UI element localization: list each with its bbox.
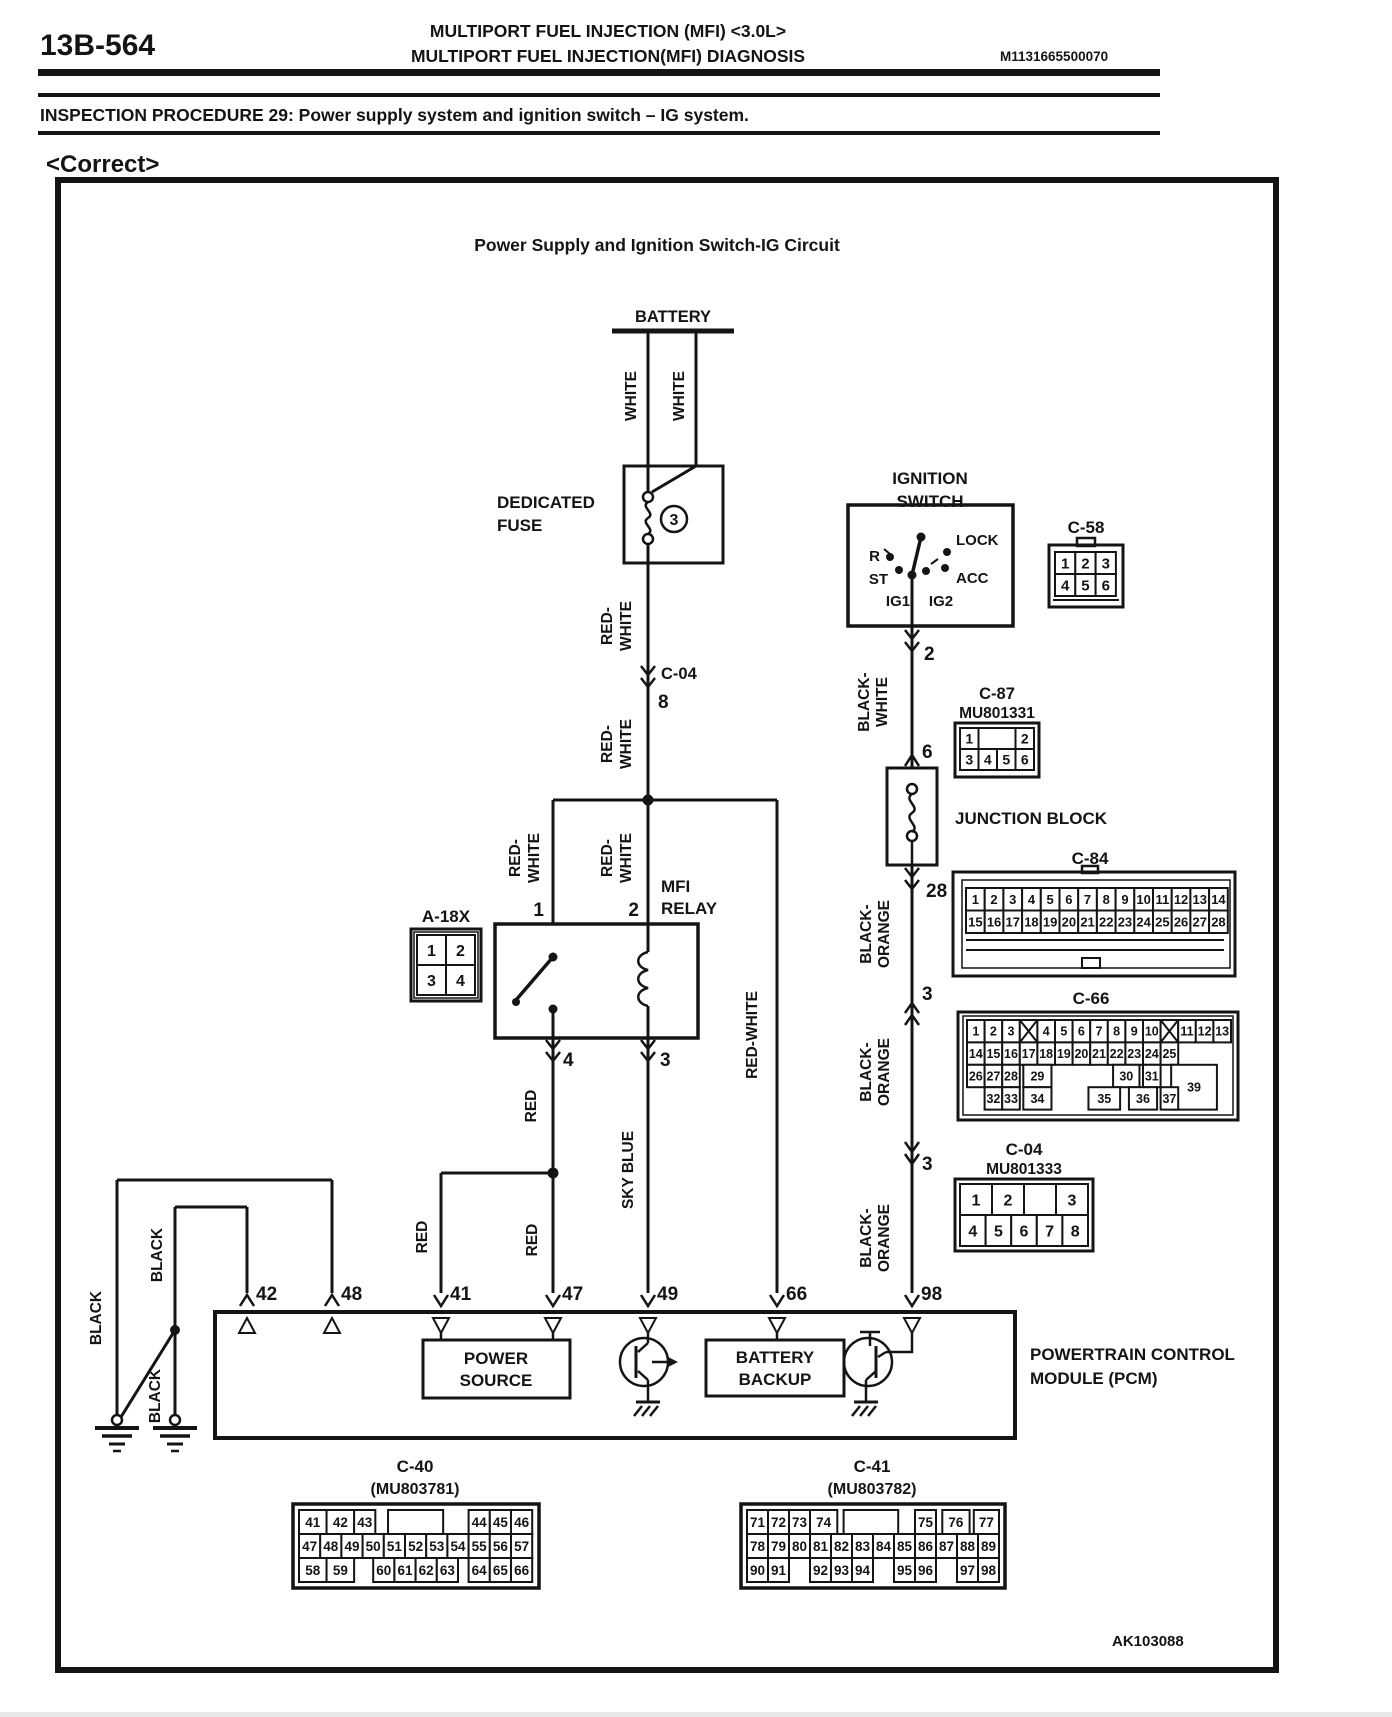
connector-pin-number: 53 [429, 1539, 445, 1554]
connector-c41: C-41 (MU803782) 717273747576777879808182… [741, 1457, 1005, 1588]
connector-c40: C-40 (MU803781) 414243444546474849505152… [293, 1457, 539, 1588]
connector-pin-number: 76 [948, 1515, 964, 1530]
connector-pin-number: 72 [771, 1515, 786, 1530]
wire-blackwhite-l1: BLACK- [856, 672, 873, 731]
jb-out-pin: 28 [926, 881, 947, 902]
connector-pin-number: 52 [408, 1539, 423, 1554]
power-source-line1: POWER [464, 1349, 528, 1368]
connector-pin-number: 58 [305, 1563, 321, 1578]
wire-redwhite4-l1: RED- [599, 839, 616, 877]
procedure-title: INSPECTION PROCEDURE 29: Power supply sy… [40, 105, 749, 125]
connector-pin-number: 57 [514, 1539, 529, 1554]
wire-redwhite4-l2: WHITE [618, 833, 635, 883]
connector-pin-number: 50 [366, 1539, 381, 1554]
connector-pin-number: 64 [472, 1563, 488, 1578]
connector-pin-number: 4 [1043, 1025, 1050, 1039]
connector-pin-number: 94 [855, 1563, 871, 1578]
connector-pin-number: 1 [965, 731, 973, 747]
connector-pin-number: 24 [1145, 1047, 1159, 1061]
connector-pin-number: 25 [1162, 1047, 1176, 1061]
wire-white-1: WHITE [623, 371, 640, 421]
connector-pin-number: 61 [397, 1563, 413, 1578]
connector-pin-number: 1 [427, 943, 436, 960]
connector-pin-number: 1 [1061, 555, 1069, 572]
c87-label: C-87 [979, 685, 1015, 703]
c66-grid: 1234567891011121314151617181920212223242… [967, 1020, 1231, 1110]
wire-redwhite-66: RED-WHITE [744, 991, 761, 1079]
c87-grid: 123456 [960, 728, 1034, 770]
connector-pin-number: 87 [939, 1539, 954, 1554]
connector-cell [844, 1510, 899, 1534]
wire-blackorange3-l1: BLACK- [858, 1208, 875, 1267]
connector-pin-number: 71 [750, 1515, 766, 1530]
via-c04-pin: 3 [922, 1154, 933, 1175]
connector-pin-number: 27 [1193, 914, 1207, 929]
connector-pin-number: 14 [1211, 892, 1226, 907]
connector-pin-number: 18 [1024, 914, 1038, 929]
connector-pin-number: 96 [918, 1563, 934, 1578]
connector-pin-number: 80 [792, 1539, 807, 1554]
connector-pin-number: 22 [1110, 1047, 1124, 1061]
connector-pin-number: 15 [986, 1047, 1000, 1061]
connector-pin-number: 32 [986, 1092, 1000, 1106]
wire-redwhite1-l1: RED- [599, 607, 616, 645]
ignition-label-line2: SWITCH [896, 492, 963, 511]
connector-pin-number: 4 [1028, 892, 1036, 907]
connector-pin-number: 2 [990, 892, 997, 907]
connector-pin-number: 89 [981, 1539, 996, 1554]
wire-red-47: RED [524, 1224, 541, 1257]
c87-part: MU801331 [959, 705, 1035, 722]
connector-pin-number: 9 [1121, 892, 1128, 907]
connector-pin-number: 49 [344, 1539, 359, 1554]
pcm-label-line1: POWERTRAIN CONTROL [1030, 1345, 1235, 1364]
connector-pin-number: 31 [1145, 1070, 1159, 1084]
connector-pin-number: 60 [376, 1563, 391, 1578]
connector-pin-number: 5 [994, 1223, 1003, 1240]
connector-pin-number: 39 [1187, 1081, 1201, 1095]
connector-pin-number: 2 [1081, 555, 1089, 572]
connector-pin-number: 62 [419, 1563, 434, 1578]
connector-pin-number: 10 [1136, 892, 1150, 907]
connector-pin-number: 3 [1068, 1192, 1077, 1209]
connector-pin-number: 13 [1215, 1025, 1229, 1039]
connector-pin-number: 47 [302, 1539, 317, 1554]
connector-pin-number: 92 [813, 1563, 828, 1578]
connector-pin-number: 2 [1021, 731, 1029, 747]
connector-pin-number: 26 [969, 1070, 983, 1084]
relay-output-wires: RED RED RED SKY BLUE [414, 1038, 648, 1293]
ignition-pos-ig2: IG2 [929, 593, 953, 610]
connector-pin-number: 86 [918, 1539, 934, 1554]
connector-pin-number: 16 [1004, 1047, 1018, 1061]
connector-pin-number: 16 [987, 914, 1001, 929]
connector-pin-number: 24 [1136, 914, 1151, 929]
connector-pin-number: 5 [1060, 1025, 1067, 1039]
connector-pin-number: 41 [305, 1515, 321, 1530]
header-title-line1: MULTIPORT FUEL INJECTION (MFI) <3.0L> [430, 21, 786, 41]
page-number: 13B-564 [40, 29, 155, 62]
power-source-line2: SOURCE [460, 1371, 533, 1390]
mfi-relay: MFI RELAY 1 2 4 3 [495, 877, 718, 1071]
connector-pin-number: 3 [965, 752, 973, 768]
connector-pin-number: 54 [450, 1539, 466, 1554]
diagram-title: Power Supply and Ignition Switch-IG Circ… [474, 235, 840, 255]
connector-pin-number: 17 [1006, 914, 1020, 929]
relay-pin1: 1 [533, 900, 544, 921]
battery: BATTERY WHITE WHITE [612, 308, 734, 492]
connector-pin-number: 6 [1065, 892, 1072, 907]
connector-c04: C-04 MU801333 12345678 [955, 1140, 1093, 1251]
connector-cell [388, 1510, 443, 1534]
battery-label: BATTERY [635, 308, 711, 326]
connector-c84: C-84 12345678910111213141516171819202122… [953, 849, 1235, 976]
pcm-label-line2: MODULE (PCM) [1030, 1369, 1157, 1388]
connector-pin-number: 10 [1145, 1025, 1159, 1039]
pcm-pin-66: 66 [786, 1284, 807, 1305]
c58-grid: 123456 [1055, 552, 1116, 596]
ignition-pos-acc: ACC [956, 570, 989, 587]
connector-pin-number: 19 [1057, 1047, 1071, 1061]
c58-label: C-58 [1068, 518, 1105, 537]
relay-box [495, 924, 698, 1038]
c41-grid: 7172737475767778798081828384858687888990… [747, 1510, 999, 1582]
jb-in-pin: 6 [922, 742, 933, 763]
connector-pin-number: 7 [1096, 1025, 1103, 1039]
c04-crossing-label: C-04 [661, 665, 698, 683]
ignition-pos-ig1: IG1 [886, 593, 910, 610]
transistor-2 [844, 1332, 892, 1416]
connector-pin-number: 75 [918, 1515, 934, 1530]
wire-blackorange2-l2: ORANGE [876, 1038, 893, 1106]
wire-blackorange2-l1: BLACK- [858, 1042, 875, 1101]
connector-pin-number: 21 [1092, 1047, 1106, 1061]
wire-blackwhite-l2: WHITE [874, 677, 891, 727]
connector-pin-number: 48 [323, 1539, 339, 1554]
connector-pin-number: 4 [1061, 577, 1070, 594]
connector-pin-number: 23 [1118, 914, 1132, 929]
connector-pin-number: 4 [968, 1223, 977, 1240]
c41-part: (MU803782) [828, 1481, 917, 1498]
connector-pin-number: 15 [968, 914, 982, 929]
fuse-number: 3 [670, 512, 679, 529]
connector-pin-number: 59 [333, 1563, 348, 1578]
connector-c66: C-66 12345678910111213141516171819202122… [958, 989, 1238, 1120]
connector-pin-number: 8 [1113, 1025, 1120, 1039]
connector-pin-number: 21 [1080, 914, 1094, 929]
ground-symbol-1 [95, 1415, 139, 1451]
connector-pin-number: 6 [1020, 1223, 1029, 1240]
connector-pin-number: 78 [750, 1539, 766, 1554]
connector-pin-number: 66 [514, 1563, 530, 1578]
c40-grid: 4142434445464748495051525354555657585960… [299, 1510, 532, 1582]
connector-pin-number: 6 [1021, 752, 1029, 768]
connector-pin-number: 13 [1193, 892, 1207, 907]
connector-pin-number: 22 [1099, 914, 1113, 929]
connector-pin-number: 1 [972, 892, 979, 907]
connector-a18x: A-18X 1234 [411, 907, 481, 1001]
connector-pin-number: 27 [986, 1070, 1000, 1084]
connector-pin-number: 6 [1078, 1025, 1085, 1039]
wire-blackorange3-l2: ORANGE [876, 1204, 893, 1272]
connector-pin-number: 37 [1162, 1092, 1176, 1106]
c66-label: C-66 [1073, 989, 1110, 1008]
diagram-svg: 13B-564 MULTIPORT FUEL INJECTION (MFI) <… [0, 0, 1392, 1712]
wire-blackorange1-l1: BLACK- [858, 904, 875, 963]
wire-redwhite1-l2: WHITE [618, 601, 635, 651]
pcm-pin-47: 47 [562, 1284, 583, 1305]
battery-backup-line2: BACKUP [739, 1370, 812, 1389]
connector-pin-number: 56 [493, 1539, 509, 1554]
relay-label-line1: MFI [661, 877, 690, 896]
connector-pin-number: 4 [984, 752, 992, 768]
connector-pin-number: 95 [897, 1563, 913, 1578]
connector-pin-number: 45 [493, 1515, 509, 1530]
connector-pin-number: 91 [771, 1563, 787, 1578]
via-c66-pin: 3 [922, 984, 933, 1005]
pcm-pin-98: 98 [921, 1284, 942, 1305]
transistor-1 [620, 1338, 678, 1416]
connector-c87: C-87 MU801331 123456 [955, 685, 1039, 777]
connector-pin-number: 3 [1008, 1025, 1015, 1039]
connector-pin-number: 97 [960, 1563, 975, 1578]
connector-pin-number: 43 [357, 1515, 373, 1530]
ignition-pos-st: ST [869, 571, 888, 588]
connector-pin-number: 4 [456, 973, 465, 990]
figure-code: AK103088 [1112, 1633, 1184, 1650]
pcm-pin-49: 49 [657, 1284, 678, 1305]
connector-pin-number: 3 [427, 973, 436, 990]
junction-block-label: JUNCTION BLOCK [955, 809, 1108, 828]
connector-pin-number: 55 [472, 1539, 488, 1554]
manual-page: 13B-564 MULTIPORT FUEL INJECTION (MFI) <… [0, 0, 1392, 1712]
relay-pin4: 4 [563, 1050, 574, 1071]
connector-pin-number: 5 [1002, 752, 1010, 768]
procedure-rule-bottom [38, 131, 1160, 135]
c04-label: C-04 [1006, 1140, 1043, 1159]
connector-pin-number: 1 [972, 1025, 979, 1039]
connector-pin-number: 8 [1103, 892, 1110, 907]
connector-pin-number: 3 [1102, 555, 1110, 572]
battery-backup-line1: BATTERY [736, 1348, 815, 1367]
connector-pin-number: 11 [1180, 1025, 1193, 1039]
c04-part: MU801333 [986, 1161, 1062, 1178]
relay-pin2: 2 [628, 900, 639, 921]
c41-label: C-41 [854, 1457, 891, 1476]
connector-pin-number: 30 [1119, 1070, 1133, 1084]
connector-pin-number: 74 [816, 1515, 832, 1530]
ignition-out-pin: 2 [924, 644, 935, 665]
connector-pin-number: 12 [1198, 1025, 1212, 1039]
connector-pin-number: 7 [1084, 892, 1091, 907]
connector-pin-number: 28 [1211, 914, 1225, 929]
connector-pin-number: 26 [1174, 914, 1188, 929]
header-title-line2: MULTIPORT FUEL INJECTION(MFI) DIAGNOSIS [411, 46, 805, 66]
pcm-pin-42: 42 [256, 1284, 277, 1305]
page-header: 13B-564 MULTIPORT FUEL INJECTION (MFI) <… [38, 21, 1160, 178]
connector-pin-number: 42 [333, 1515, 348, 1530]
connector-pin-number: 3 [1009, 892, 1016, 907]
wire-red-41: RED [414, 1221, 431, 1254]
connector-pin-number: 8 [1071, 1223, 1080, 1240]
connector-pin-number: 79 [771, 1539, 786, 1554]
wire-black-2: BLACK [149, 1227, 166, 1282]
connector-pin-number: 33 [1004, 1092, 1018, 1106]
connector-pin-number: 65 [493, 1563, 509, 1578]
connector-pin-number: 35 [1097, 1092, 1111, 1106]
connector-pin-number: 51 [387, 1539, 403, 1554]
c40-label: C-40 [397, 1457, 434, 1476]
connector-pin-number: 25 [1155, 914, 1169, 929]
pcm-pin-48: 48 [341, 1284, 362, 1305]
connector-pin-number: 93 [834, 1563, 850, 1578]
connector-pin-number: 6 [1102, 577, 1110, 594]
connector-cell [979, 728, 1016, 749]
wire-redwhite2-l2: WHITE [618, 719, 635, 769]
connector-cell [1024, 1184, 1056, 1215]
connector-pin-number: 1 [972, 1192, 981, 1209]
connector-pin-number: 29 [1030, 1070, 1044, 1084]
ignition-switch: IGNITION SWITCH R ST LOCK ACC IG1 IG2 [848, 469, 1013, 626]
pcm: 42 48 41 47 49 66 98 POWER SOURCE BATTER… [215, 1284, 1235, 1438]
wire-skyblue: SKY BLUE [620, 1131, 637, 1209]
connector-pin-number: 20 [1074, 1047, 1088, 1061]
connector-pin-number: 90 [750, 1563, 765, 1578]
connector-pin-number: 12 [1174, 892, 1188, 907]
connector-pin-number: 82 [834, 1539, 849, 1554]
connector-pin-number: 2 [456, 943, 465, 960]
ground-wires: BLACK BLACK BLACK [88, 1180, 332, 1451]
wire-redwhite3-l1: RED- [507, 839, 524, 877]
connector-pin-number: 63 [440, 1563, 456, 1578]
connector-pin-number: 19 [1043, 914, 1057, 929]
connector-pin-number: 11 [1155, 892, 1169, 907]
doc-code: M1131665500070 [1000, 49, 1108, 64]
ignition-pos-lock: LOCK [956, 532, 999, 549]
connector-pin-number: 2 [990, 1025, 997, 1039]
wire-redwhite3-l2: WHITE [526, 833, 543, 883]
wire-blackorange1-l2: ORANGE [876, 900, 893, 968]
connector-pin-number: 17 [1022, 1047, 1036, 1061]
connector-pin-number: 46 [514, 1515, 530, 1530]
a18x-label: A-18X [422, 907, 471, 926]
connector-pin-number: 20 [1062, 914, 1076, 929]
connector-pin-number: 84 [876, 1539, 892, 1554]
c84-grid: 1234567891011121314151617181920212223242… [966, 888, 1228, 933]
connector-pin-number: 2 [1004, 1192, 1013, 1209]
wire-redwhite2-l1: RED- [599, 725, 616, 763]
connector-pin-number: 85 [897, 1539, 913, 1554]
connector-pin-number: 88 [960, 1539, 976, 1554]
connector-pin-number: 28 [1004, 1070, 1018, 1084]
header-rule [38, 69, 1160, 76]
connector-pin-number: 9 [1131, 1025, 1138, 1039]
connector-pin-number: 14 [969, 1047, 983, 1061]
connector-pin-number: 5 [1047, 892, 1054, 907]
connector-pin-number: 7 [1045, 1223, 1054, 1240]
ignition-label-line1: IGNITION [892, 469, 968, 488]
pcm-pin-41: 41 [450, 1284, 472, 1305]
connector-pin-number: 73 [792, 1515, 808, 1530]
fuse-label-line2: FUSE [497, 516, 542, 535]
connector-pin-number: 98 [981, 1563, 997, 1578]
connector-pin-number: 83 [855, 1539, 871, 1554]
connector-pin-number: 18 [1039, 1047, 1053, 1061]
procedure-rule-top [38, 93, 1160, 97]
verdict-label: <Correct> [46, 151, 159, 178]
fuse-label-line1: DEDICATED [497, 493, 595, 512]
connector-pin-number: 5 [1081, 577, 1089, 594]
c04-crossing-pin: 8 [658, 692, 669, 713]
c04-grid: 12345678 [960, 1184, 1088, 1246]
connector-pin-number: 23 [1127, 1047, 1141, 1061]
relay-pin3: 3 [660, 1050, 671, 1071]
relay-label-line2: RELAY [661, 899, 718, 918]
connector-pin-number: 44 [472, 1515, 488, 1530]
wire-white-2: WHITE [671, 371, 688, 421]
c40-part: (MU803781) [371, 1481, 460, 1498]
connector-pin-number: 36 [1136, 1092, 1150, 1106]
wire-black-3: BLACK [147, 1368, 164, 1423]
wire-red-4: RED [523, 1090, 540, 1123]
ignition-pos-r: R [869, 548, 880, 565]
connector-pin-number: 77 [979, 1515, 994, 1530]
connector-pin-number: 34 [1030, 1092, 1044, 1106]
connector-c58: C-58 123456 [1049, 518, 1123, 607]
wire-black-1: BLACK [88, 1290, 105, 1345]
a18x-grid: 1234 [417, 935, 475, 995]
connector-pin-number: 81 [813, 1539, 829, 1554]
